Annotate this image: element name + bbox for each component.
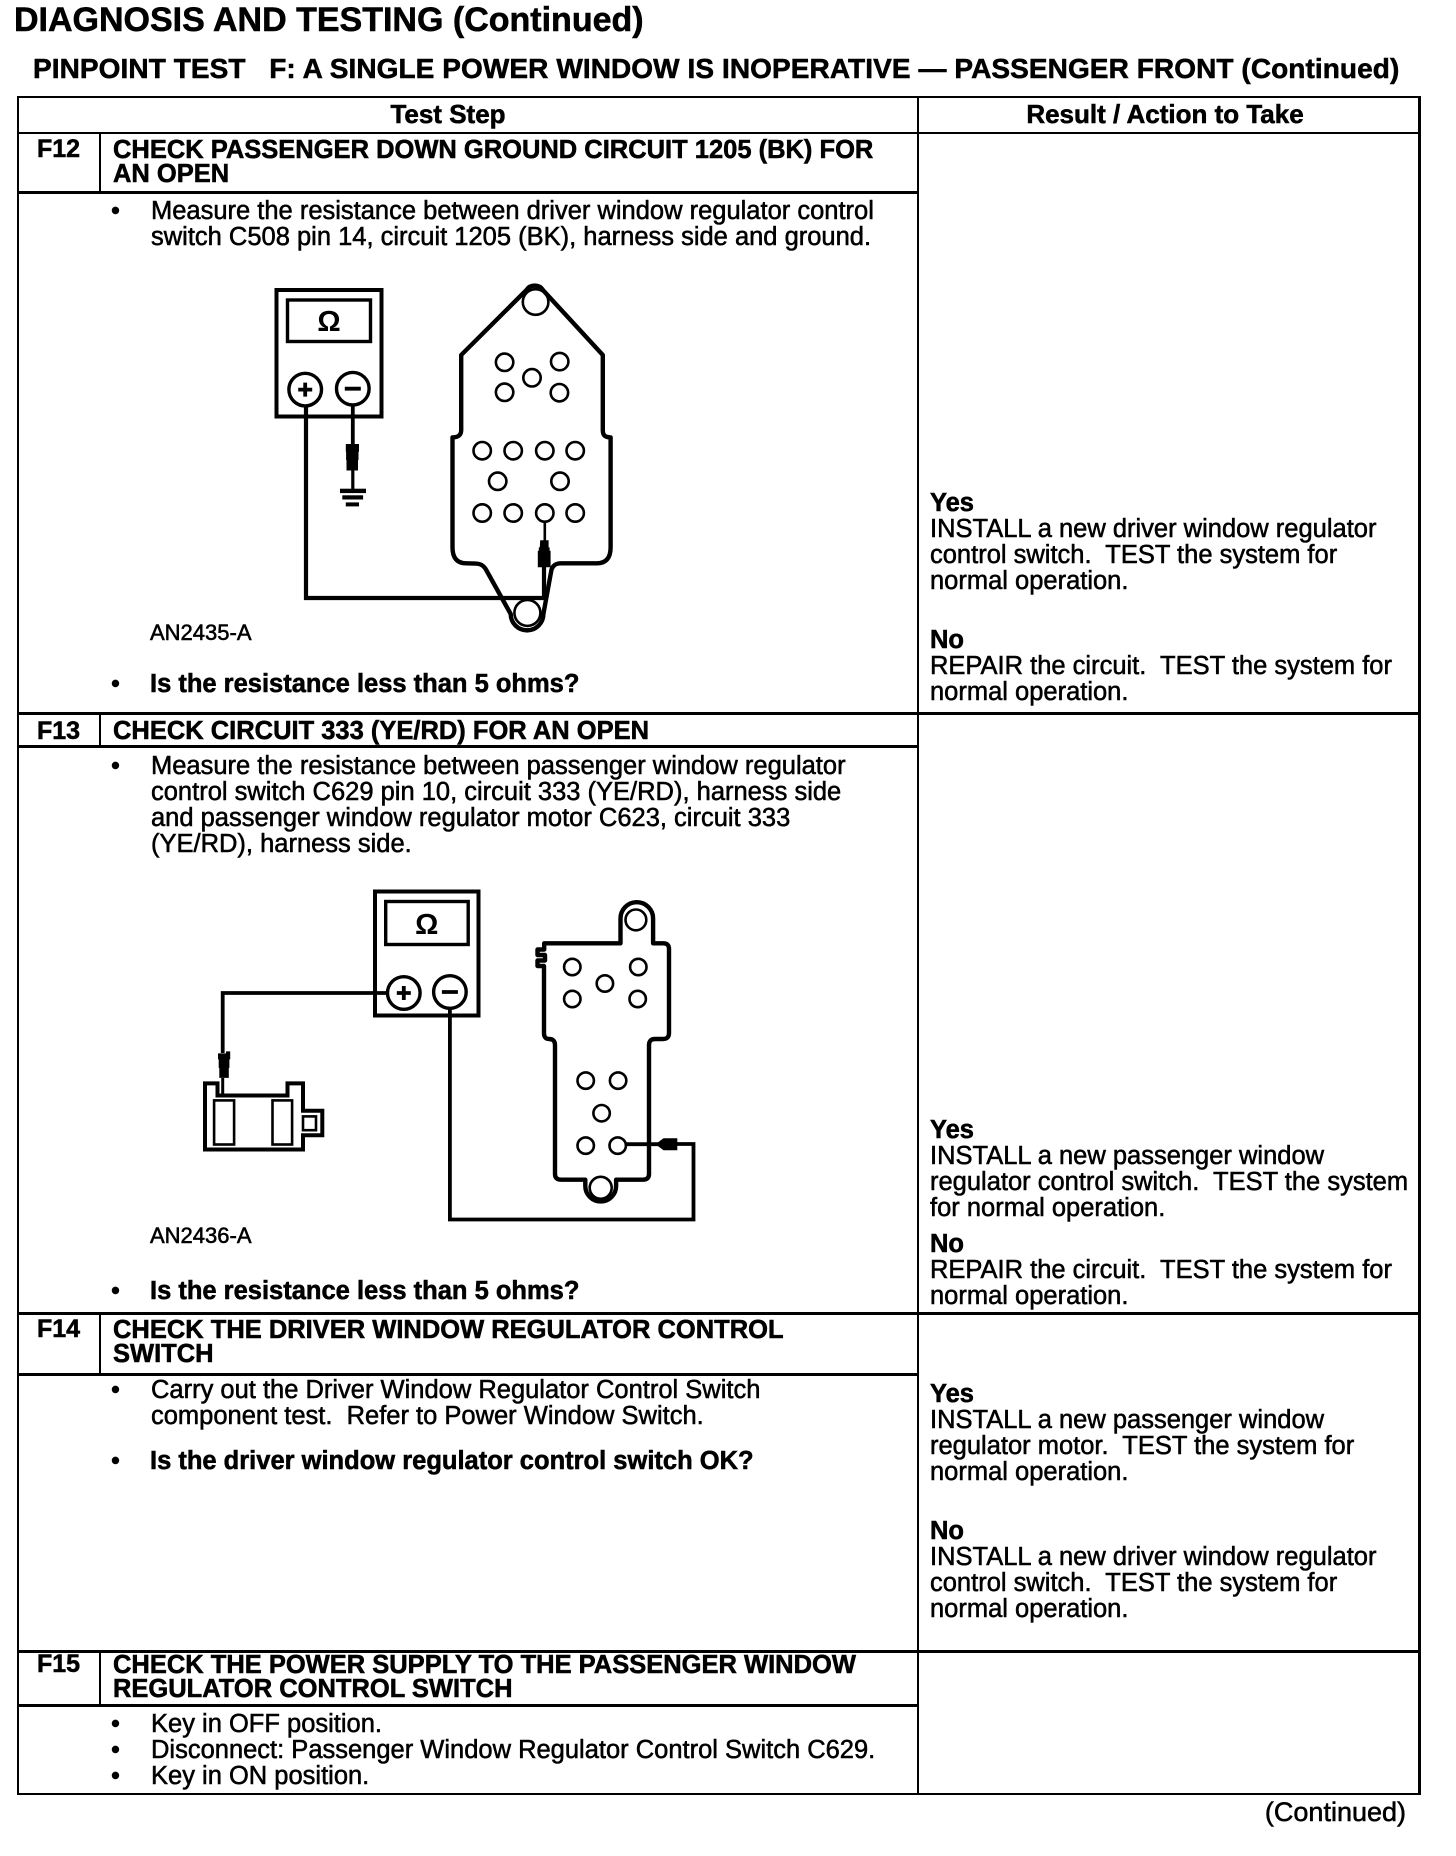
svg-text:Ω: Ω	[317, 306, 340, 338]
svg-text:Ω: Ω	[415, 909, 438, 941]
